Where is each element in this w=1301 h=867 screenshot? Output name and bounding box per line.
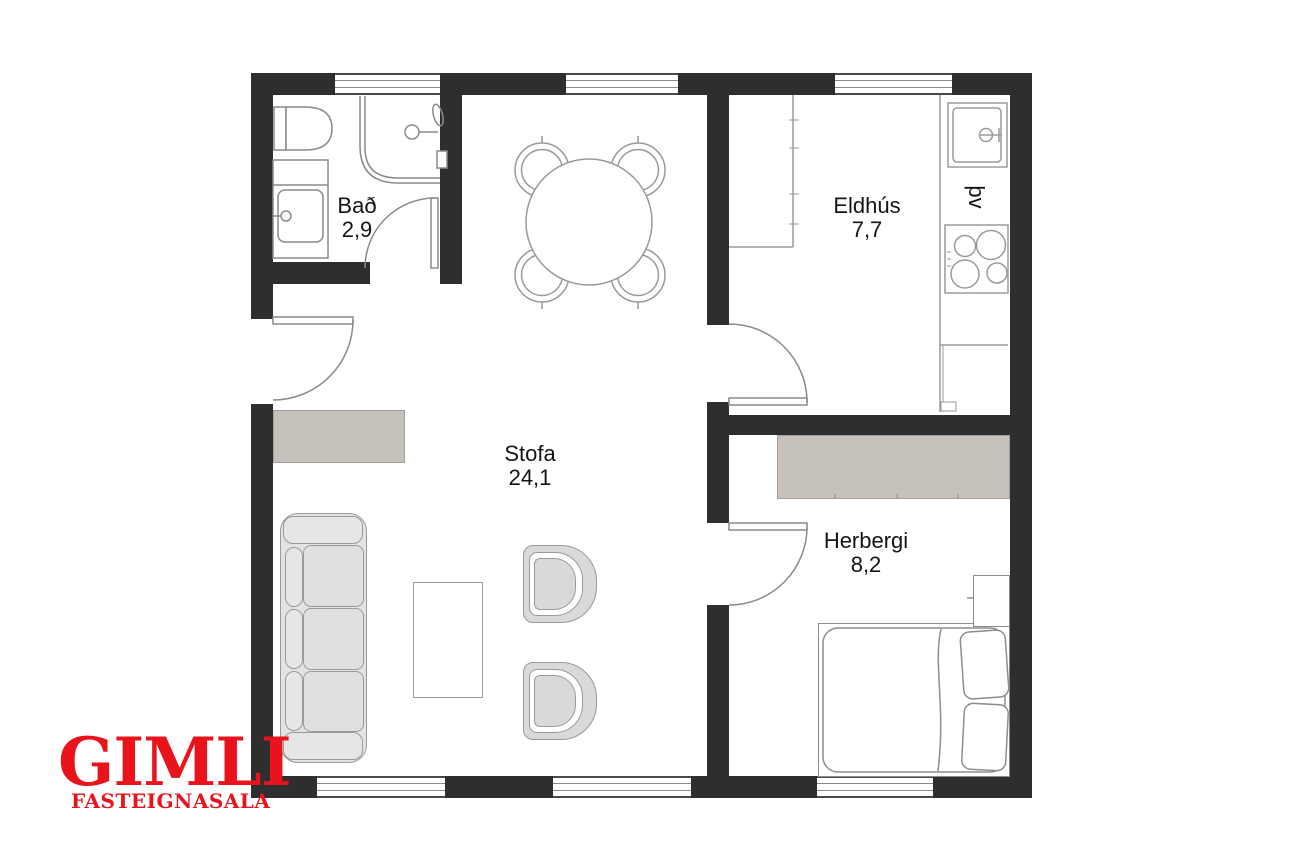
shower-head-icon [405, 103, 447, 168]
kitchen-sink [948, 103, 1007, 167]
entrance-door [273, 317, 353, 400]
wardrobe-ticks [835, 494, 958, 499]
pillow-1 [960, 629, 1010, 699]
kitchen-counter-left [729, 95, 799, 247]
stove [945, 225, 1008, 293]
logo-gimli: GIMLI FASTEIGNASALA [58, 728, 291, 812]
dining-table [526, 159, 652, 285]
toilet [274, 107, 332, 150]
shower-enclosure [360, 96, 440, 183]
bed-pillows [960, 629, 1010, 771]
pillow-2 [961, 703, 1008, 771]
logo-tagline: FASTEIGNASALA [58, 790, 291, 812]
bedroom-door [729, 523, 807, 605]
floor-plan-canvas: Bað 2,9 Eldhús 7,7 Stofa 24,1 Herbergi 8… [0, 0, 1301, 867]
kitchen-door [729, 324, 807, 405]
bathroom-door [365, 198, 438, 268]
logo-name: GIMLI [58, 728, 291, 796]
bathroom-sink [273, 160, 328, 258]
